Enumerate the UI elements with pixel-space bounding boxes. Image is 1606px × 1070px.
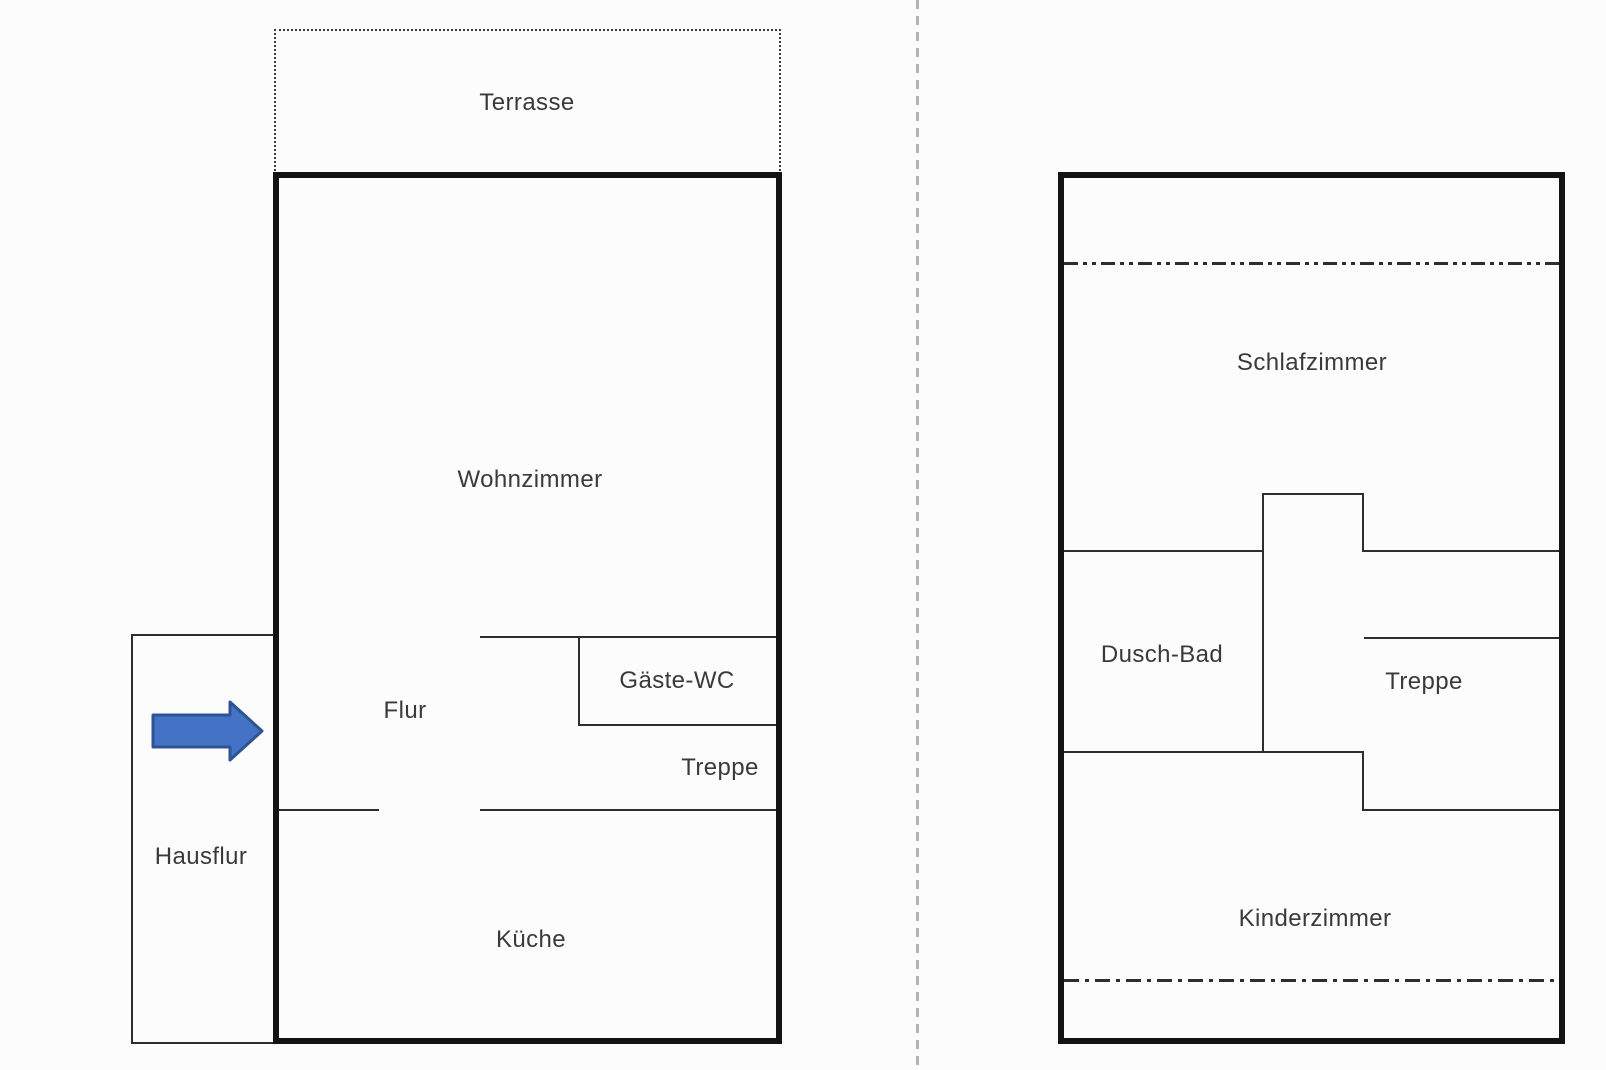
floor-plan-diagram: Terrasse Wohnzimmer Flur Gäste-WC Treppe… bbox=[0, 0, 1606, 1070]
entrance-right-arrow-icon bbox=[150, 698, 265, 764]
hausflur-area-outline bbox=[131, 634, 276, 1044]
treppe-top-wall-line bbox=[1364, 637, 1559, 639]
room-label-flur: Flur bbox=[384, 697, 427, 725]
page-divider-dashed-line bbox=[916, 0, 919, 1070]
room-label-terrasse: Terrasse bbox=[479, 89, 574, 117]
room-label-hausflur: Hausflur bbox=[155, 843, 248, 871]
kueche-wall-left-segment bbox=[279, 809, 379, 811]
room-label-gaeste-wc: Gäste-WC bbox=[619, 667, 734, 695]
kueche-wall-right-segment bbox=[480, 809, 776, 811]
room-label-dusch-bad: Dusch-Bad bbox=[1101, 641, 1223, 669]
room-label-schlafzimmer: Schlafzimmer bbox=[1237, 349, 1387, 377]
treppe-bottom-wall-line bbox=[1362, 809, 1559, 811]
treppe-shaft-right-wall bbox=[1362, 493, 1364, 552]
treppe-shaft-top-wall bbox=[1262, 493, 1364, 495]
schlafzimmer-bottom-wall-left bbox=[1064, 550, 1264, 552]
room-label-kueche: Küche bbox=[496, 926, 566, 954]
schlafzimmer-bottom-wall-right bbox=[1362, 550, 1559, 552]
treppe-shaft-left-wall bbox=[1262, 493, 1264, 753]
roof-slope-dash-line-bottom bbox=[1064, 979, 1559, 982]
room-label-kinderzimmer: Kinderzimmer bbox=[1239, 905, 1392, 933]
room-label-treppe-upper-floor: Treppe bbox=[1385, 668, 1463, 696]
treppe-step-wall bbox=[1362, 751, 1364, 811]
roof-slope-dash-line-top bbox=[1064, 262, 1559, 265]
room-label-wohnzimmer: Wohnzimmer bbox=[458, 466, 603, 494]
left-plan-outer-walls bbox=[273, 172, 782, 1044]
room-label-treppe-ground-floor: Treppe bbox=[681, 754, 759, 782]
dusch-bad-bottom-wall bbox=[1064, 751, 1364, 753]
